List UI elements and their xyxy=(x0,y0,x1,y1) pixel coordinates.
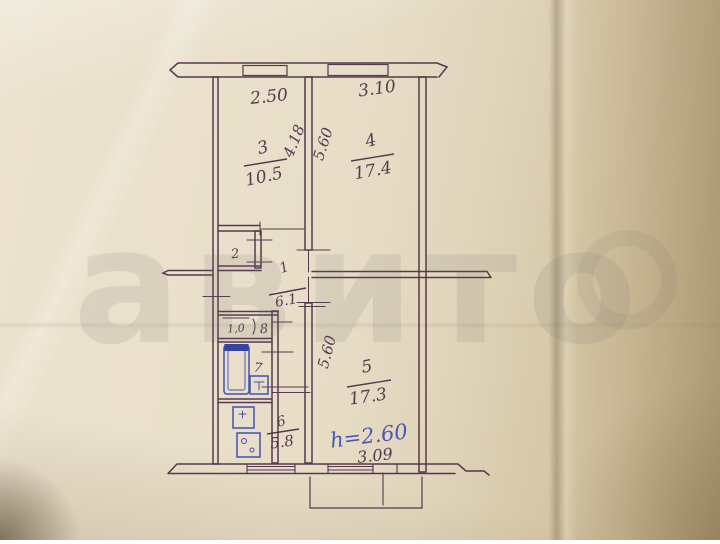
balcony xyxy=(310,477,422,508)
room4-label: 4 17.4 xyxy=(351,130,394,184)
kitchen-area: 5.8 xyxy=(269,431,295,452)
scanned-paper-background: 2.50 3.10 4.18 5.60 5.60 3 10.5 4 17.4 5… xyxy=(0,0,720,540)
watermark-text: авито xyxy=(73,193,647,380)
room3-number: 3 xyxy=(255,137,271,159)
room3-label: 3 10.5 xyxy=(243,137,287,191)
stove-icon xyxy=(237,433,260,457)
room5-area: 17.3 xyxy=(348,384,388,409)
room4-number: 4 xyxy=(362,130,379,152)
dimension-room3-width: 2.50 xyxy=(248,85,289,109)
bottom-outer-wall xyxy=(168,464,489,505)
kitchen-sink-icon xyxy=(233,407,254,428)
dimension-room4-width: 3.10 xyxy=(357,76,397,101)
window-room4 xyxy=(328,65,388,76)
room3-area: 10.5 xyxy=(243,163,284,190)
dimension-room3-depth: 4.18 xyxy=(279,122,309,161)
kitchen-number: 6 xyxy=(275,413,288,431)
top-outer-wall xyxy=(170,63,447,77)
room4-area: 17.4 xyxy=(353,158,394,184)
ceiling-height-note: h=2.60 xyxy=(329,419,409,452)
window-kitchen xyxy=(247,464,295,473)
floor-plan-drawing: 2.50 3.10 4.18 5.60 5.60 3 10.5 4 17.4 5… xyxy=(0,0,720,540)
dimension-room4-depth: 5.60 xyxy=(309,125,337,163)
window-room3 xyxy=(243,66,287,76)
